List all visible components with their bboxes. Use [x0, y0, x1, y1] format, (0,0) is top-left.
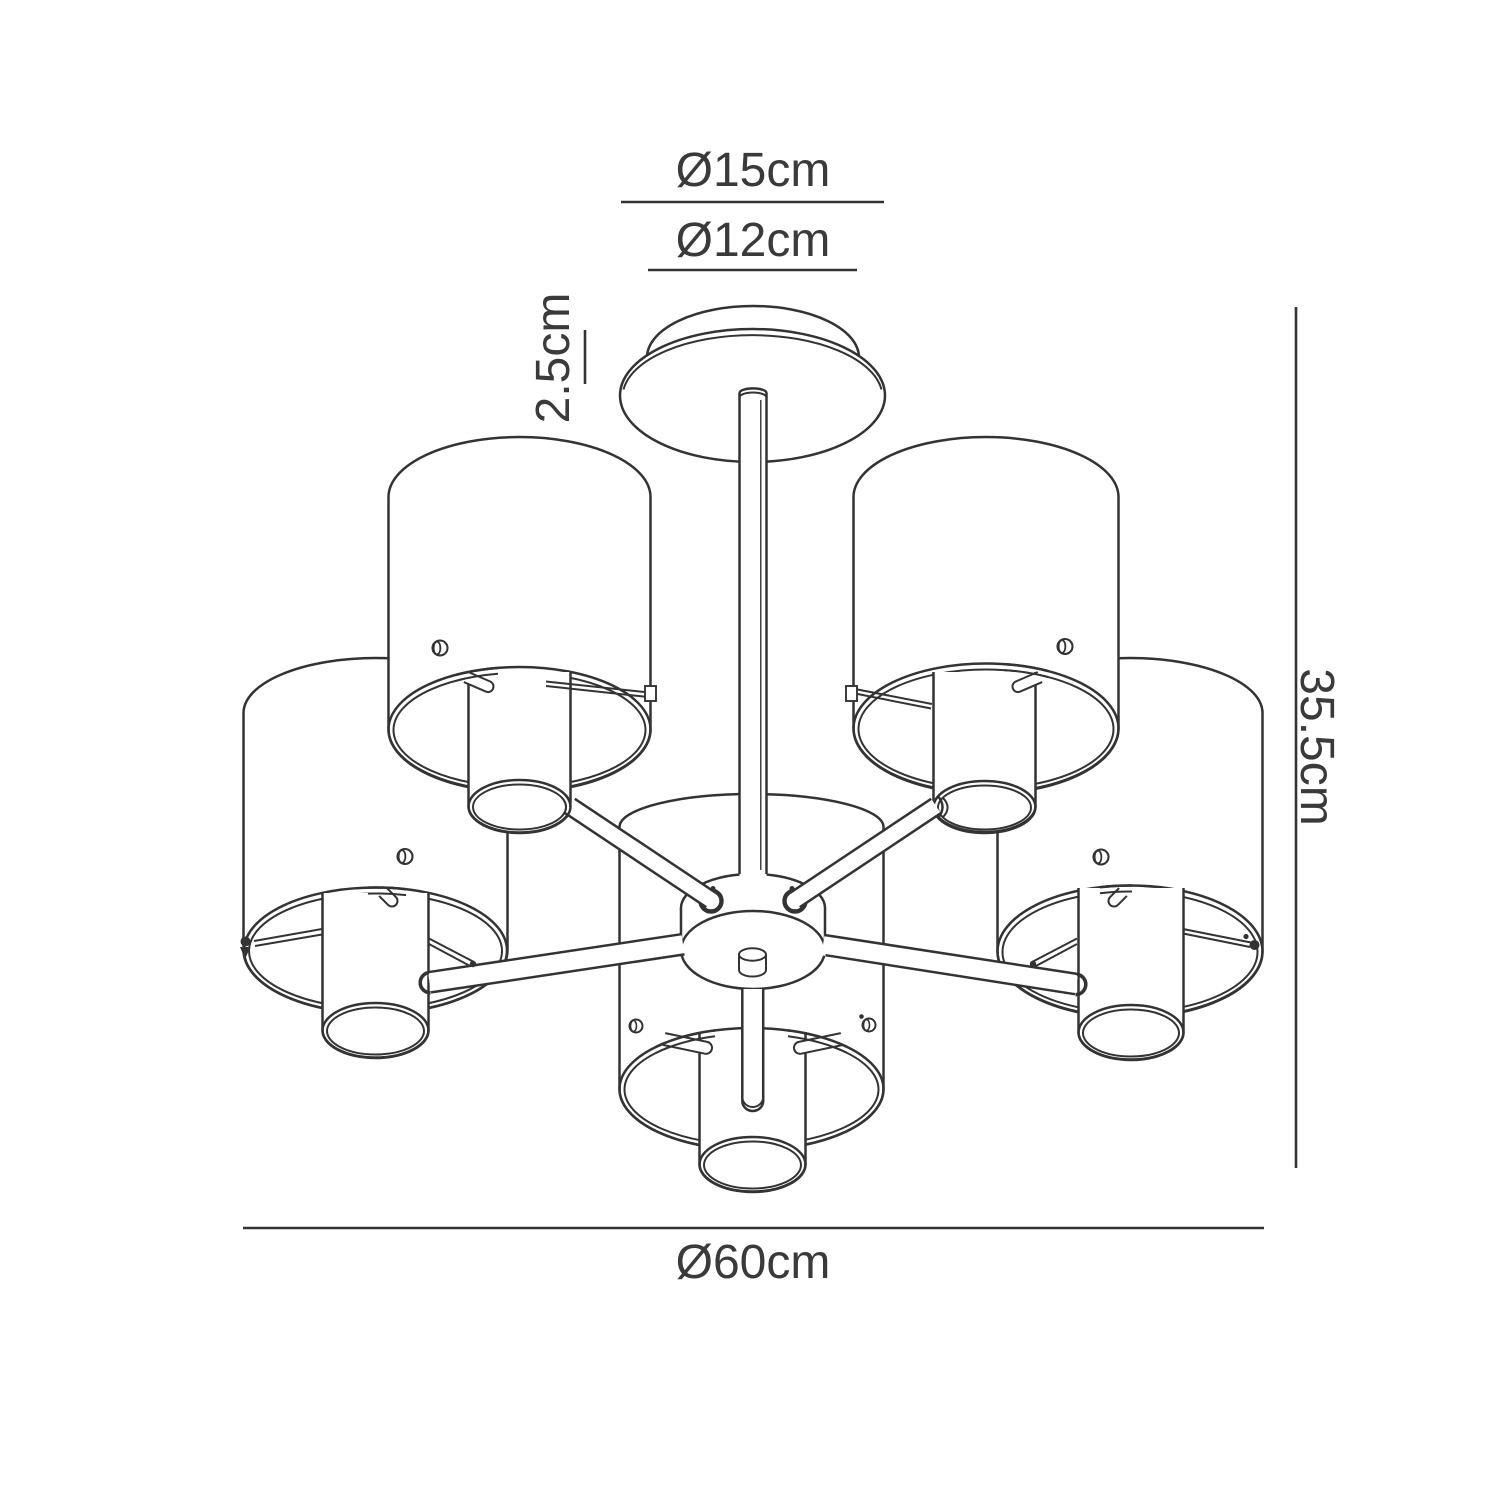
svg-text:Ø12cm: Ø12cm [676, 214, 831, 267]
svg-text:Ø60cm: Ø60cm [676, 1236, 831, 1289]
svg-text:35.5cm: 35.5cm [1290, 668, 1343, 825]
svg-text:2.5cm: 2.5cm [527, 293, 580, 424]
svg-text:Ø15cm: Ø15cm [676, 144, 831, 197]
